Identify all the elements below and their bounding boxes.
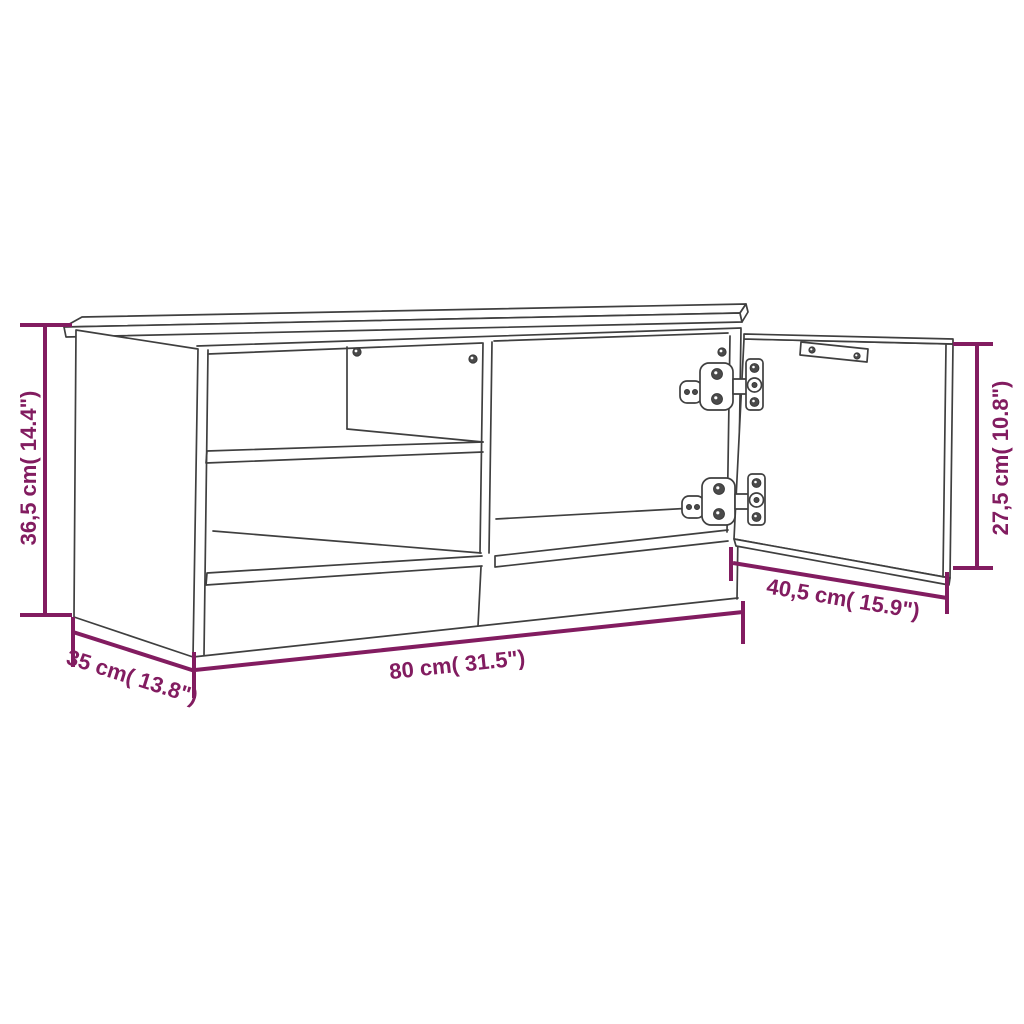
door-height-dimension: 27,5 cm( 10.8"): [953, 344, 1013, 568]
carcass-frame: [193, 328, 741, 657]
left-stile-inner-edge: [204, 350, 208, 655]
left-compartment: [206, 347, 483, 585]
back-panel-screw-hole: [353, 348, 361, 356]
height-dimension-label: 36,5 cm( 14.4"): [16, 391, 41, 546]
door-height-dimension-label: 27,5 cm( 10.8"): [988, 381, 1013, 536]
hinge-cup: [682, 496, 704, 518]
center-divider: [480, 342, 492, 553]
shelf-top-back-edge: [347, 429, 483, 442]
top-panel: [64, 304, 748, 337]
back-panel-screw-hole: [469, 355, 477, 363]
diagram-canvas: 36,5 cm( 14.4") 35 cm( 13.8") 80 cm( 31.…: [0, 0, 1024, 1024]
shelf-front-edge: [206, 442, 483, 463]
bottom-board-front-edge: [495, 530, 728, 567]
bottom-board-front-edge: [206, 556, 482, 585]
hinge-bottom: [682, 474, 765, 525]
width-dimension: 80 cm( 31.5"): [194, 601, 743, 698]
width-dimension-label: 80 cm( 31.5"): [388, 645, 526, 684]
furniture-dimension-diagram: 36,5 cm( 14.4") 35 cm( 13.8") 80 cm( 31.…: [0, 0, 1024, 1024]
plinth-split-line: [478, 567, 481, 626]
hinge-top: [680, 359, 763, 410]
door-inner-face: [734, 339, 953, 578]
width-dimension-line: [194, 601, 743, 698]
back-panel-screw-hole: [718, 348, 726, 356]
front-bottom-edge: [193, 598, 738, 657]
open-door: [734, 334, 953, 585]
door-height-dimension-line: [953, 344, 993, 568]
depth-dimension-label: 35 cm( 13.8"): [63, 644, 201, 709]
left-side-panel: [74, 330, 198, 657]
hinge-cup: [680, 381, 702, 403]
bottom-board-back-edge: [213, 531, 481, 553]
height-dimension: 36,5 cm( 14.4"): [16, 325, 72, 615]
